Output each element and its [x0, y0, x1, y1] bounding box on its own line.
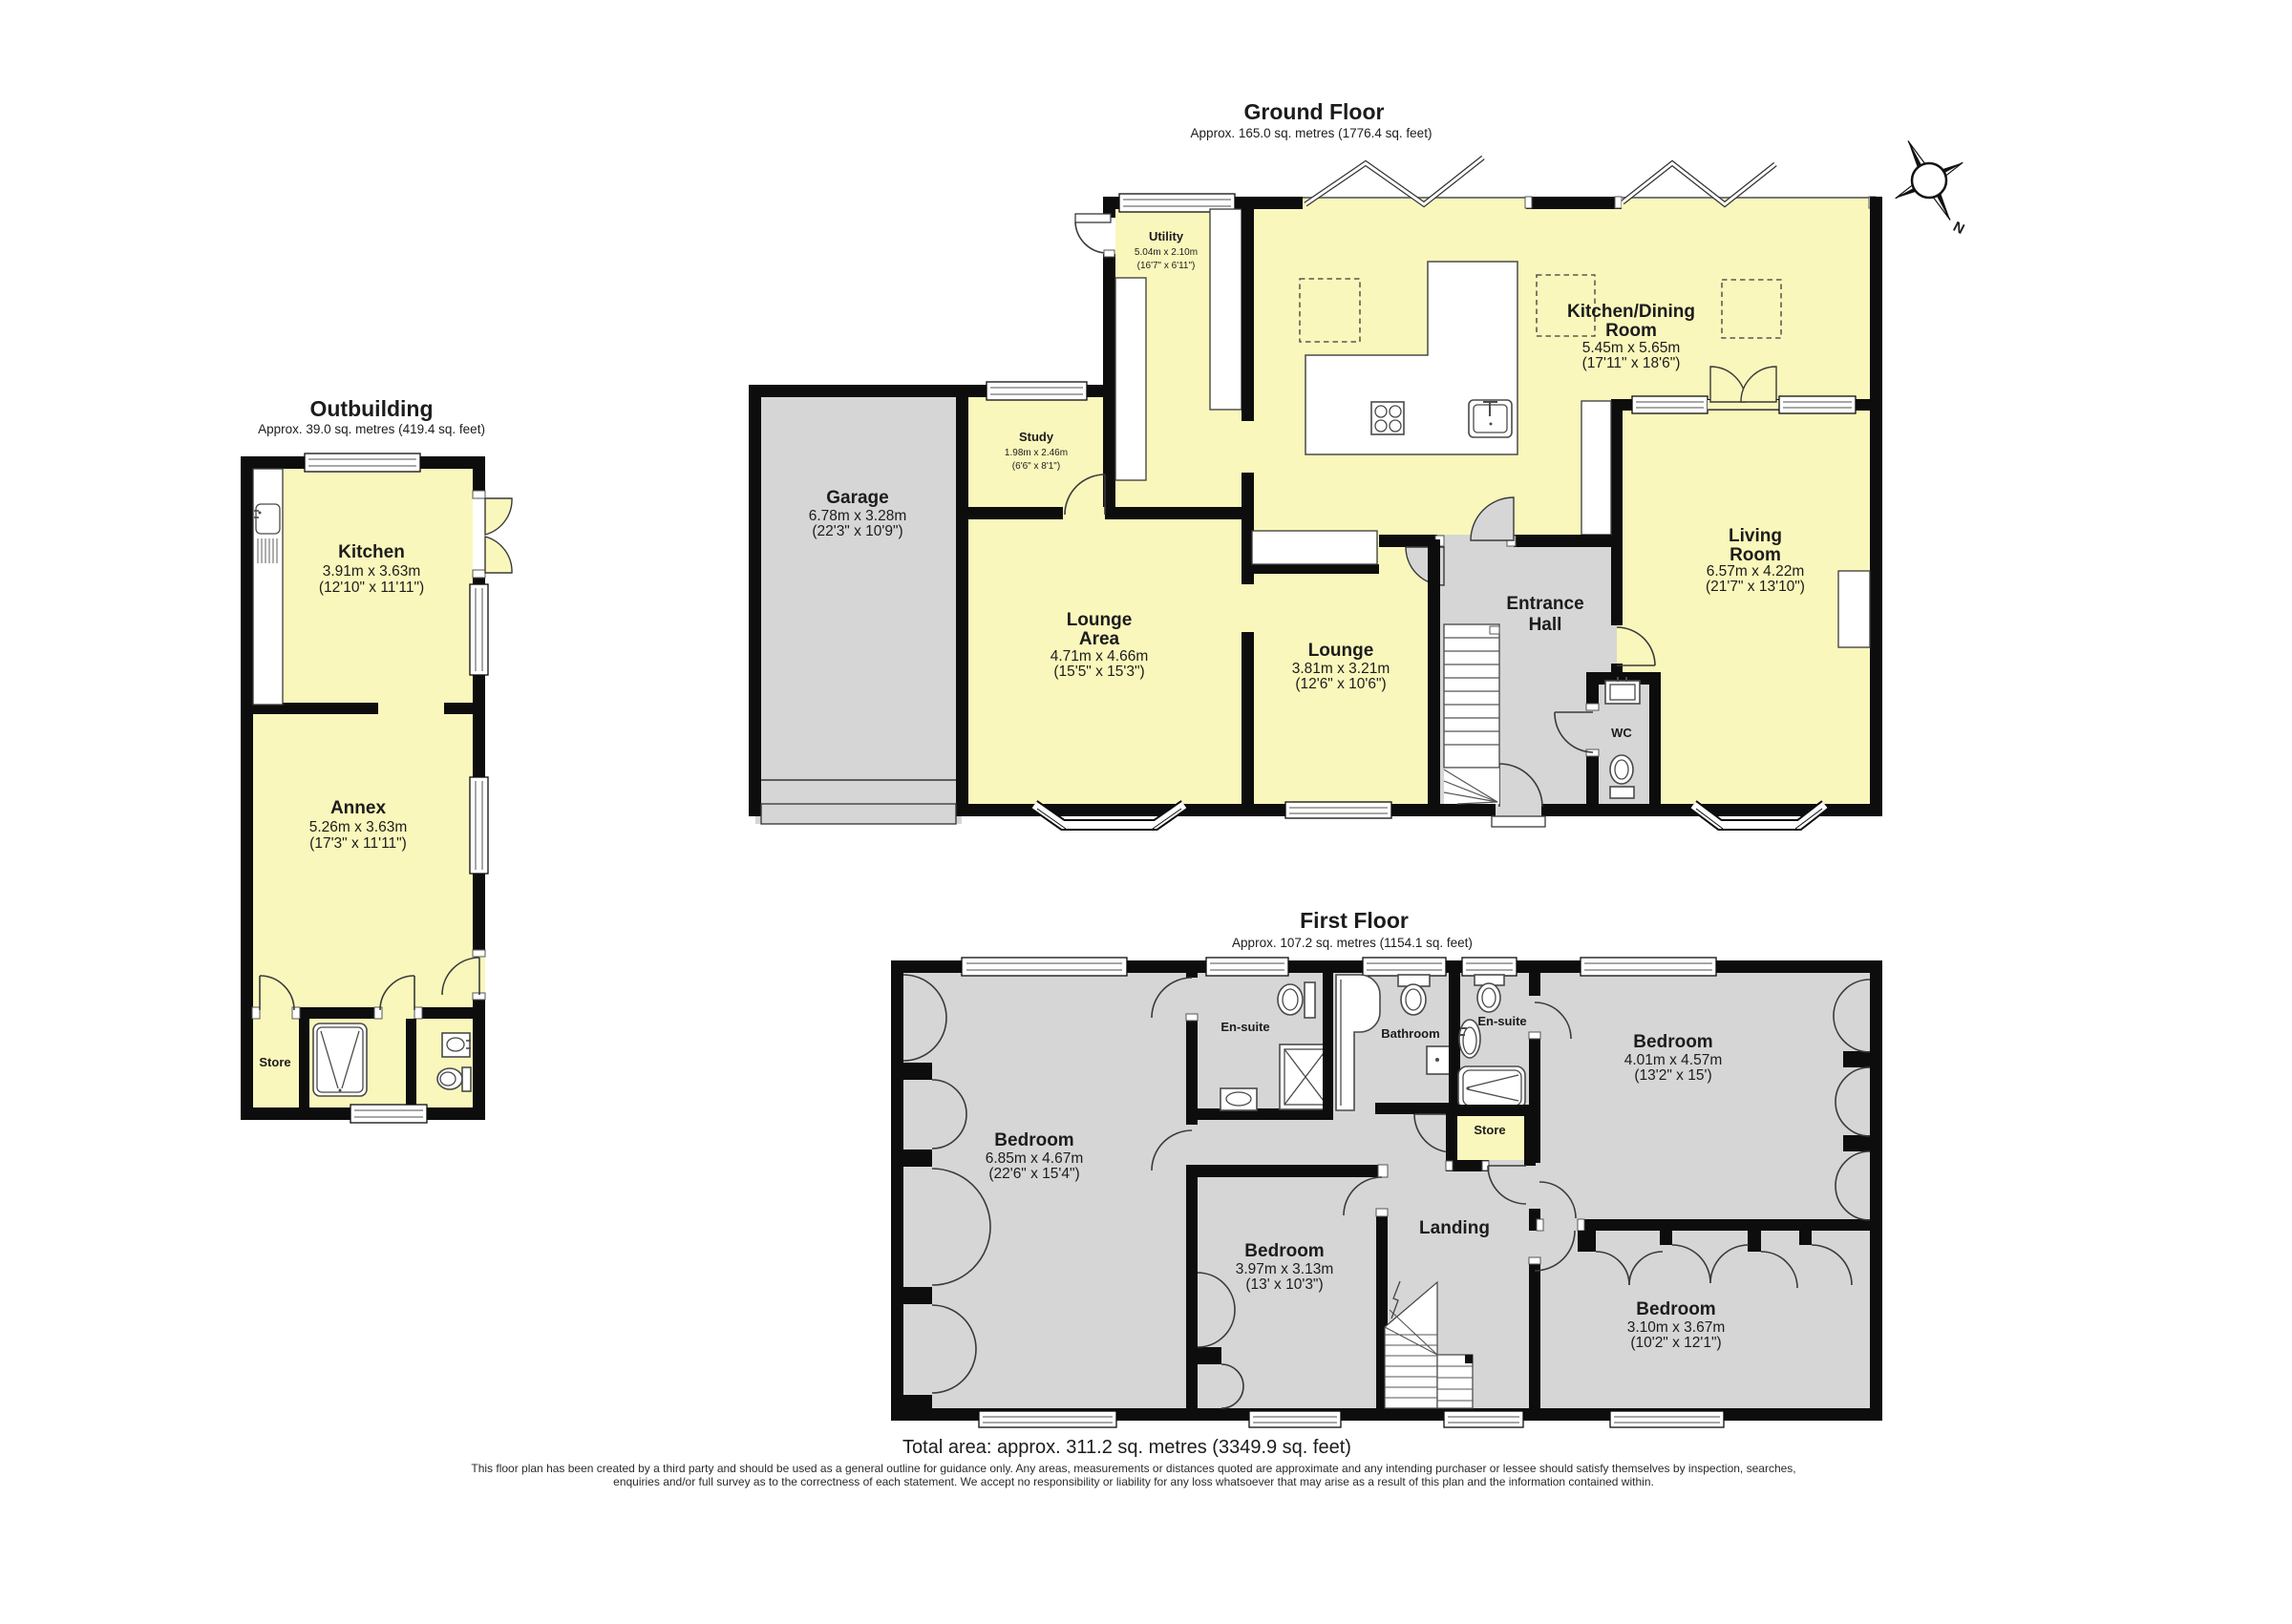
- svg-text:(17'3" x 11'11"): (17'3" x 11'11"): [309, 835, 407, 852]
- svg-text:Garage: Garage: [826, 488, 888, 508]
- svg-text:First Floor: First Floor: [1300, 908, 1409, 933]
- svg-text:Lounge: Lounge: [1308, 641, 1374, 661]
- svg-text:Approx. 107.2 sq. metres (1154: Approx. 107.2 sq. metres (1154.1 sq. fee…: [1232, 936, 1473, 950]
- svg-text:Approx. 165.0 sq. metres (1776: Approx. 165.0 sq. metres (1776.4 sq. fee…: [1191, 126, 1432, 140]
- svg-text:3.10m x 3.67m: 3.10m x 3.67m: [1627, 1319, 1726, 1336]
- svg-text:Lounge: Lounge: [1067, 610, 1133, 630]
- svg-text:Approx. 39.0 sq. metres (419.4: Approx. 39.0 sq. metres (419.4 sq. feet): [258, 422, 485, 436]
- svg-text:Living: Living: [1729, 526, 1782, 546]
- svg-text:Room: Room: [1605, 321, 1657, 341]
- svg-text:(16'7" x 6'11"): (16'7" x 6'11"): [1137, 261, 1196, 271]
- svg-text:Annex: Annex: [330, 798, 387, 818]
- svg-text:Room: Room: [1730, 545, 1781, 565]
- svg-text:This floor plan has been creat: This floor plan has been created by a th…: [471, 1462, 1795, 1475]
- svg-text:4.01m x 4.57m: 4.01m x 4.57m: [1624, 1052, 1723, 1068]
- svg-text:1.98m x 2.46m: 1.98m x 2.46m: [1005, 448, 1068, 458]
- svg-text:Hall: Hall: [1529, 615, 1562, 635]
- svg-text:6.85m x 4.67m: 6.85m x 4.67m: [986, 1150, 1084, 1167]
- svg-text:(15'5" x 15'3"): (15'5" x 15'3"): [1053, 664, 1144, 680]
- svg-text:Store: Store: [1474, 1123, 1505, 1137]
- svg-text:5.45m x 5.65m: 5.45m x 5.65m: [1582, 340, 1681, 356]
- svg-text:Landing: Landing: [1419, 1218, 1490, 1238]
- svg-text:Utility: Utility: [1149, 229, 1184, 243]
- svg-text:5.04m x 2.10m: 5.04m x 2.10m: [1135, 247, 1198, 258]
- svg-text:5.26m x 3.63m: 5.26m x 3.63m: [309, 819, 408, 835]
- svg-text:(12'6" x 10'6"): (12'6" x 10'6"): [1295, 676, 1386, 692]
- svg-text:WC: WC: [1611, 726, 1632, 740]
- svg-text:6.57m x 4.22m: 6.57m x 4.22m: [1707, 563, 1805, 580]
- svg-text:(22'6" x 15'4"): (22'6" x 15'4"): [988, 1166, 1079, 1182]
- svg-text:(6'6" x 8'1"): (6'6" x 8'1"): [1012, 461, 1060, 472]
- svg-text:enquiries and/or full survey a: enquiries and/or full survey as to the c…: [613, 1475, 1654, 1488]
- svg-text:Ground Floor: Ground Floor: [1244, 99, 1385, 124]
- svg-text:Kitchen/Dining: Kitchen/Dining: [1567, 302, 1695, 322]
- svg-text:(22'3" x 10'9"): (22'3" x 10'9"): [812, 523, 902, 539]
- svg-text:Bedroom: Bedroom: [994, 1130, 1073, 1150]
- svg-text:Area: Area: [1079, 629, 1120, 649]
- svg-text:Entrance: Entrance: [1506, 594, 1583, 614]
- svg-text:Bathroom: Bathroom: [1381, 1026, 1439, 1041]
- svg-text:Store: Store: [259, 1055, 290, 1069]
- svg-text:Bedroom: Bedroom: [1244, 1241, 1324, 1261]
- svg-text:3.91m x 3.63m: 3.91m x 3.63m: [323, 563, 421, 580]
- svg-text:(13' x 10'3"): (13' x 10'3"): [1245, 1276, 1323, 1293]
- svg-text:Total area: approx. 311.2 sq.: Total area: approx. 311.2 sq. metres (33…: [902, 1437, 1351, 1458]
- svg-text:(12'10" x 11'11"): (12'10" x 11'11"): [319, 580, 424, 596]
- svg-text:3.81m x 3.21m: 3.81m x 3.21m: [1292, 661, 1390, 677]
- svg-text:Bedroom: Bedroom: [1633, 1032, 1712, 1052]
- svg-text:En-suite: En-suite: [1220, 1020, 1269, 1034]
- svg-text:Kitchen: Kitchen: [338, 542, 405, 562]
- svg-text:6.78m x 3.28m: 6.78m x 3.28m: [809, 508, 907, 524]
- svg-text:(10'2" x 12'1"): (10'2" x 12'1"): [1630, 1335, 1721, 1351]
- svg-text:En-suite: En-suite: [1477, 1014, 1526, 1028]
- svg-text:3.97m x 3.13m: 3.97m x 3.13m: [1236, 1261, 1334, 1277]
- svg-text:(17'11" x 18'6"): (17'11" x 18'6"): [1582, 355, 1681, 371]
- svg-text:(21'7" x 13'10"): (21'7" x 13'10"): [1706, 579, 1805, 595]
- svg-text:(13'2" x 15'): (13'2" x 15'): [1634, 1067, 1711, 1084]
- svg-text:4.71m x 4.66m: 4.71m x 4.66m: [1050, 648, 1149, 664]
- svg-text:Bedroom: Bedroom: [1636, 1299, 1715, 1319]
- svg-text:Outbuilding: Outbuilding: [309, 396, 433, 421]
- svg-text:Study: Study: [1019, 430, 1054, 444]
